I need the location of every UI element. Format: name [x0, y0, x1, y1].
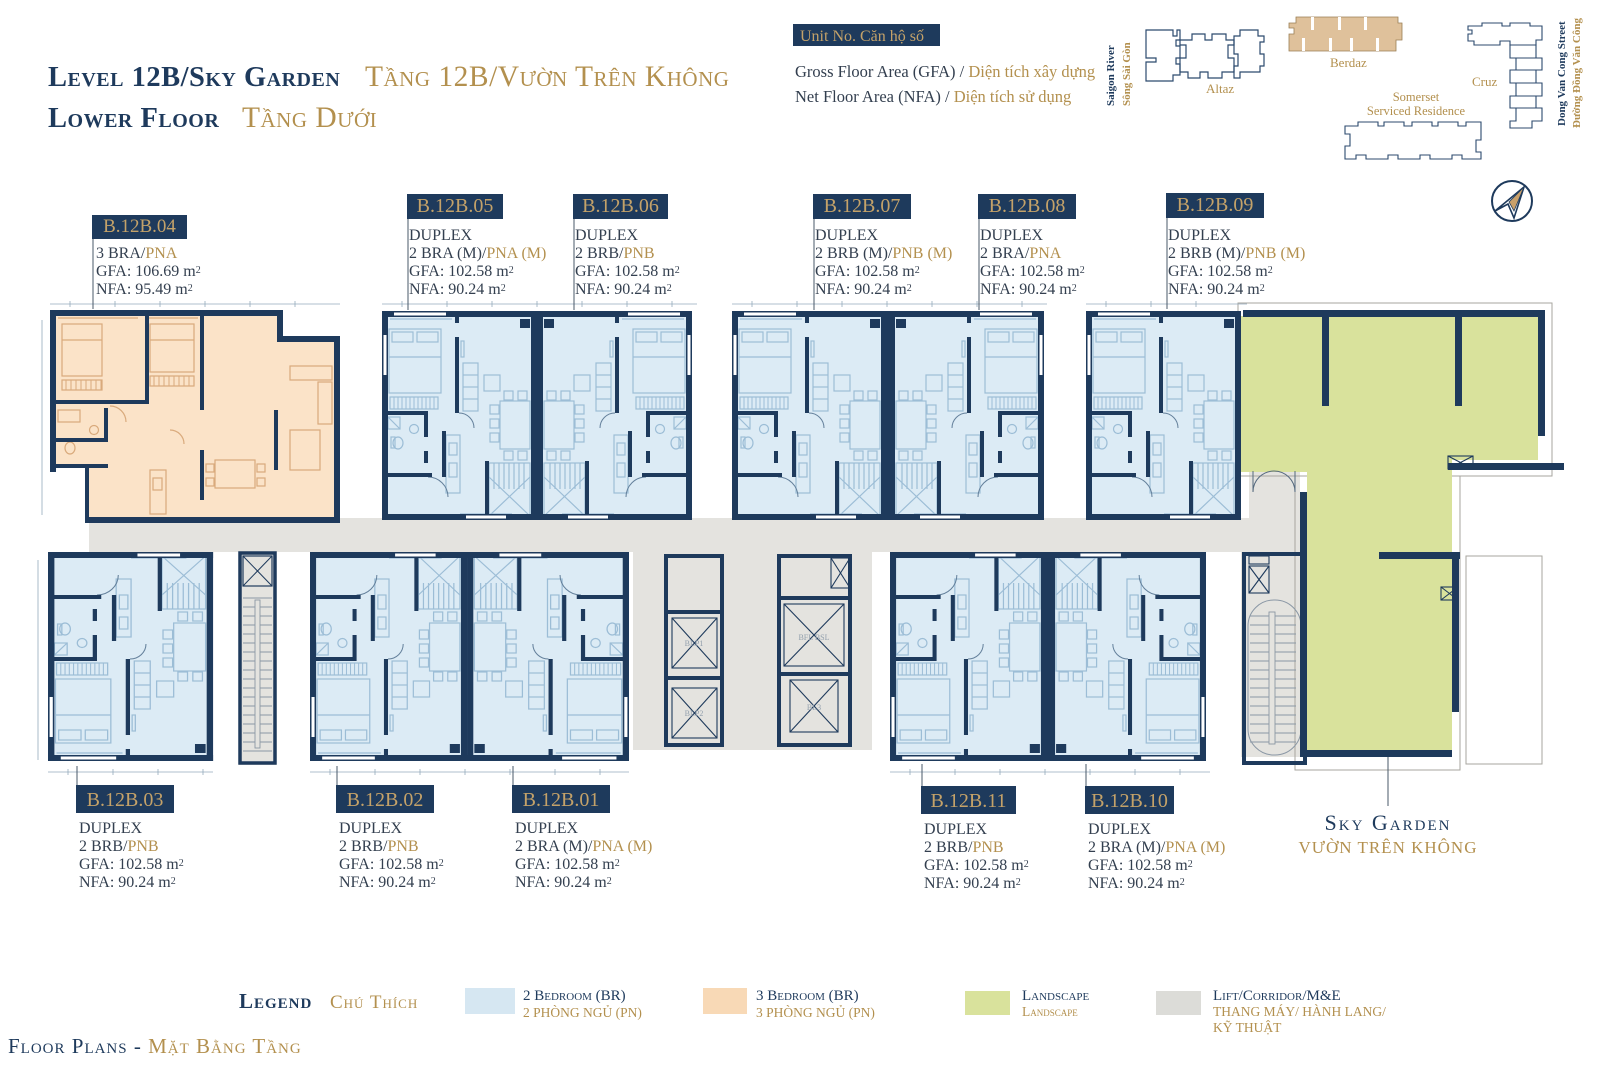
svg-text:3 BRA/PNA: 3 BRA/PNA	[96, 245, 178, 262]
svg-text:2 BRA (M)/PNA (M): 2 BRA (M)/PNA (M)	[1088, 839, 1225, 856]
svg-text:BFL BSL: BFL BSL	[798, 633, 829, 642]
svg-text:THANG MÁY/ HÀNH LANG/: THANG MÁY/ HÀNH LANG/	[1213, 1004, 1386, 1019]
svg-text:DUPLEX: DUPLEX	[980, 227, 1044, 244]
svg-text:VƯỜN TRÊN KHÔNG: VƯỜN TRÊN KHÔNG	[1299, 838, 1478, 857]
svg-text:NFA: 90.24 m2: NFA: 90.24 m2	[409, 281, 506, 298]
svg-text:DUPLEX: DUPLEX	[79, 820, 143, 837]
svg-text:GFA: 102.58 m2: GFA: 102.58 m2	[815, 263, 920, 280]
svg-text:B.12B.07: B.12B.07	[824, 195, 901, 217]
svg-text:DUPLEX: DUPLEX	[815, 227, 879, 244]
svg-text:Level 12B/Sky Garden: Level 12B/Sky Garden	[48, 62, 340, 93]
svg-text:Berdaz: Berdaz	[1330, 55, 1367, 70]
svg-text:Tầng Dưới: Tầng Dưới	[242, 102, 377, 134]
svg-text:NFA: 90.24 m2: NFA: 90.24 m2	[339, 874, 436, 891]
svg-text:GFA: 106.69 m2: GFA: 106.69 m2	[96, 263, 201, 280]
svg-text:GFA: 102.58 m2: GFA: 102.58 m2	[409, 263, 514, 280]
svg-text:DUPLEX: DUPLEX	[924, 821, 988, 838]
svg-text:Lower Floor: Lower Floor	[48, 103, 219, 134]
svg-text:GFA: 102.58 m2: GFA: 102.58 m2	[1088, 857, 1193, 874]
svg-text:GFA: 102.58 m2: GFA: 102.58 m2	[79, 856, 184, 873]
svg-text:Dong Van Cong Street: Dong Van Cong Street	[1556, 21, 1568, 126]
svg-text:B.12B.09: B.12B.09	[1177, 194, 1254, 216]
svg-text:3 PHÒNG NGỦ (PN): 3 PHÒNG NGỦ (PN)	[756, 1005, 875, 1020]
svg-text:GFA: 102.58 m2: GFA: 102.58 m2	[924, 857, 1029, 874]
svg-text:BLP1: BLP1	[685, 639, 704, 648]
svg-text:Sky Garden: Sky Garden	[1325, 810, 1452, 835]
svg-text:DUPLEX: DUPLEX	[339, 820, 403, 837]
svg-text:B.12B.11: B.12B.11	[931, 790, 1007, 812]
svg-text:B.12B.02: B.12B.02	[347, 789, 424, 811]
svg-text:DUPLEX: DUPLEX	[409, 227, 473, 244]
svg-text:Altaz: Altaz	[1206, 81, 1234, 96]
svg-text:Floor Plans - Mặt Bằng Tầng: Floor Plans - Mặt Bằng Tầng	[8, 1034, 302, 1058]
svg-text:2 BRB (M)/PNB (M): 2 BRB (M)/PNB (M)	[1168, 245, 1305, 262]
svg-text:Tầng 12B/Vườn Trên Không: Tầng 12B/Vườn Trên Không	[365, 61, 729, 93]
svg-text:B.12B.06: B.12B.06	[582, 195, 659, 217]
svg-text:Net Floor Area (NFA) / Diện tí: Net Floor Area (NFA) / Diện tích sử dụng	[795, 87, 1071, 106]
svg-text:Somerset: Somerset	[1393, 90, 1440, 104]
svg-text:GFA: 102.58 m2: GFA: 102.58 m2	[1168, 263, 1273, 280]
svg-text:2 BRB/PNB: 2 BRB/PNB	[924, 839, 1004, 856]
svg-text:B.12B.04: B.12B.04	[103, 216, 176, 237]
svg-text:Cruz: Cruz	[1472, 74, 1498, 89]
svg-text:2 BRB/PNB: 2 BRB/PNB	[339, 838, 419, 855]
svg-text:B.12B.05: B.12B.05	[417, 195, 494, 217]
svg-text:NFA: 90.24 m2: NFA: 90.24 m2	[79, 874, 176, 891]
svg-text:DUPLEX: DUPLEX	[1168, 227, 1232, 244]
svg-text:GFA: 102.58 m2: GFA: 102.58 m2	[515, 856, 620, 873]
svg-text:Unit No. Căn hộ số: Unit No. Căn hộ số	[800, 28, 924, 45]
svg-text:NFA: 95.49 m2: NFA: 95.49 m2	[96, 281, 193, 298]
svg-text:B.12B.01: B.12B.01	[523, 789, 600, 811]
svg-text:NFA: 90.24 m2: NFA: 90.24 m2	[1168, 281, 1265, 298]
svg-text:Landscape: Landscape	[1022, 988, 1090, 1004]
svg-text:GFA: 102.58 m2: GFA: 102.58 m2	[980, 263, 1085, 280]
svg-text:NFA: 90.24 m2: NFA: 90.24 m2	[980, 281, 1077, 298]
svg-text:Serviced Residence: Serviced Residence	[1367, 104, 1466, 118]
svg-text:Chú Thích: Chú Thích	[330, 992, 418, 1013]
svg-text:Đường Đồng Văn Công: Đường Đồng Văn Công	[1571, 18, 1583, 128]
svg-text:Sông Sài Gòn: Sông Sài Gòn	[1121, 42, 1133, 106]
svg-text:NFA: 90.24 m2: NFA: 90.24 m2	[815, 281, 912, 298]
svg-text:Lift/Corridor/M&E: Lift/Corridor/M&E	[1213, 988, 1341, 1004]
svg-text:Legend: Legend	[239, 989, 312, 1013]
svg-text:2 BRA (M)/PNA (M): 2 BRA (M)/PNA (M)	[515, 838, 652, 855]
svg-text:KỸ THUẬT: KỸ THUẬT	[1213, 1020, 1282, 1035]
svg-text:B.12B.03: B.12B.03	[87, 789, 164, 811]
svg-text:B.12B.10: B.12B.10	[1091, 790, 1168, 812]
svg-text:2 Bedroom (BR): 2 Bedroom (BR)	[523, 988, 626, 1004]
svg-text:BL3: BL3	[807, 703, 821, 712]
svg-text:DUPLEX: DUPLEX	[575, 227, 639, 244]
svg-text:Landscape: Landscape	[1022, 1004, 1078, 1019]
svg-text:2 BRB (M)/PNB (M): 2 BRB (M)/PNB (M)	[815, 245, 952, 262]
svg-text:NFA: 90.24 m2: NFA: 90.24 m2	[1088, 875, 1185, 892]
svg-text:DUPLEX: DUPLEX	[1088, 821, 1152, 838]
svg-text:2 PHÒNG NGỦ (PN): 2 PHÒNG NGỦ (PN)	[523, 1005, 642, 1020]
svg-text:NFA: 90.24 m2: NFA: 90.24 m2	[515, 874, 612, 891]
svg-text:3 Bedroom (BR): 3 Bedroom (BR)	[756, 988, 859, 1004]
svg-text:GFA: 102.58 m2: GFA: 102.58 m2	[575, 263, 680, 280]
svg-text:NFA: 90.24 m2: NFA: 90.24 m2	[575, 281, 672, 298]
svg-text:BLP2: BLP2	[685, 709, 704, 718]
svg-text:DUPLEX: DUPLEX	[515, 820, 579, 837]
svg-text:2 BRA/PNA: 2 BRA/PNA	[980, 245, 1062, 262]
svg-text:B.12B.08: B.12B.08	[989, 195, 1066, 217]
svg-text:2 BRB/PNB: 2 BRB/PNB	[79, 838, 159, 855]
svg-text:Gross Floor Area (GFA) / Diện: Gross Floor Area (GFA) / Diện tích xây d…	[795, 62, 1095, 81]
svg-text:2 BRB/PNB: 2 BRB/PNB	[575, 245, 655, 262]
svg-text:2 BRA (M)/PNA (M): 2 BRA (M)/PNA (M)	[409, 245, 546, 262]
svg-text:GFA: 102.58 m2: GFA: 102.58 m2	[339, 856, 444, 873]
svg-text:Saigon River: Saigon River	[1105, 45, 1117, 106]
svg-text:NFA: 90.24 m2: NFA: 90.24 m2	[924, 875, 1021, 892]
